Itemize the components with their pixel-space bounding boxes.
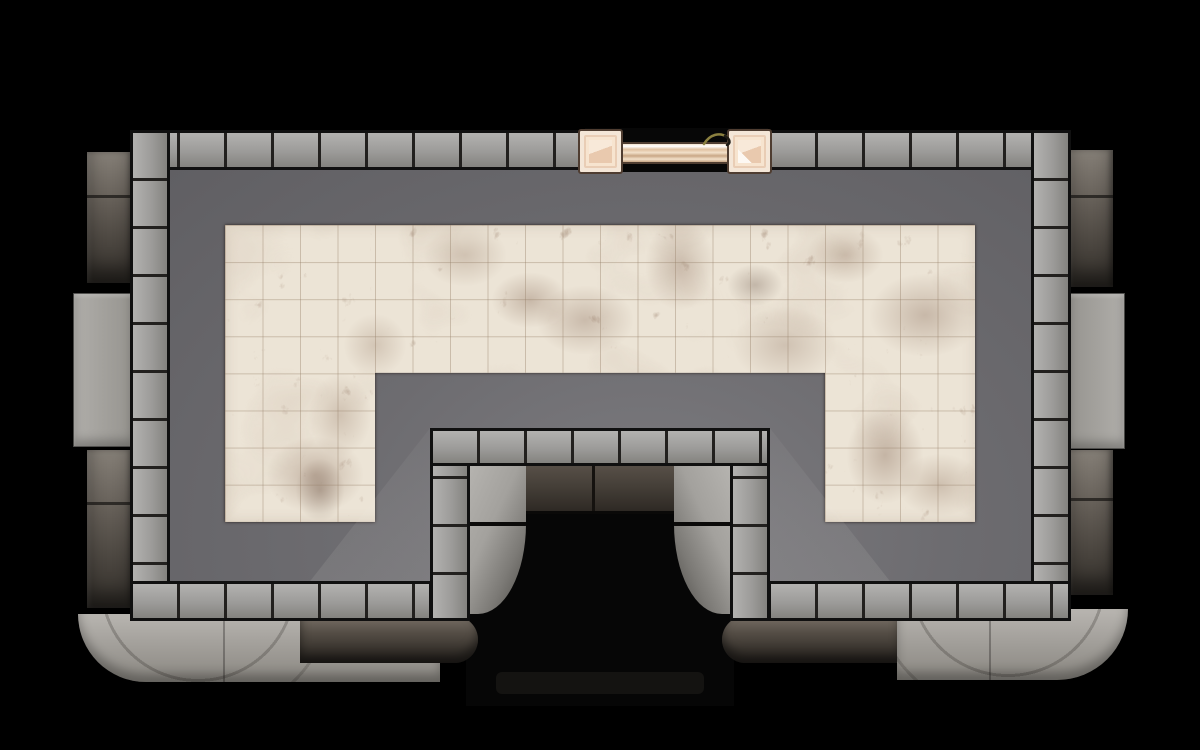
wall-left (130, 130, 170, 621)
wall-bottom-left-segment (130, 581, 432, 621)
alcove-wall-top (430, 428, 770, 466)
passage-wall-face-right (674, 466, 732, 614)
buttress-left-top (87, 152, 132, 283)
door-post-panel (589, 140, 612, 163)
buttress-right-bottom (1068, 450, 1113, 595)
buttress-left-bottom (87, 450, 132, 608)
buttress-right-middle (1068, 293, 1125, 449)
battlemap-stage (0, 0, 1200, 750)
passage-step-shadow (496, 672, 704, 694)
door-latch-icon (700, 128, 740, 154)
door-post-panel (738, 140, 761, 163)
door-post-left[interactable] (578, 129, 623, 174)
passage-lintel (524, 466, 676, 514)
alcove-passage (466, 464, 734, 706)
buttress-right-top (1068, 150, 1113, 287)
ledge-bottom-left-dark (300, 616, 478, 663)
wall-top-right-segment (768, 130, 1071, 170)
wall-right (1031, 130, 1071, 621)
wall-bottom-right-segment (768, 581, 1071, 621)
passage-wall-face-left (468, 466, 526, 614)
buttress-left-middle (73, 293, 133, 447)
wall-top-left-segment (130, 130, 585, 170)
ledge-bottom-right-dark (722, 616, 900, 663)
